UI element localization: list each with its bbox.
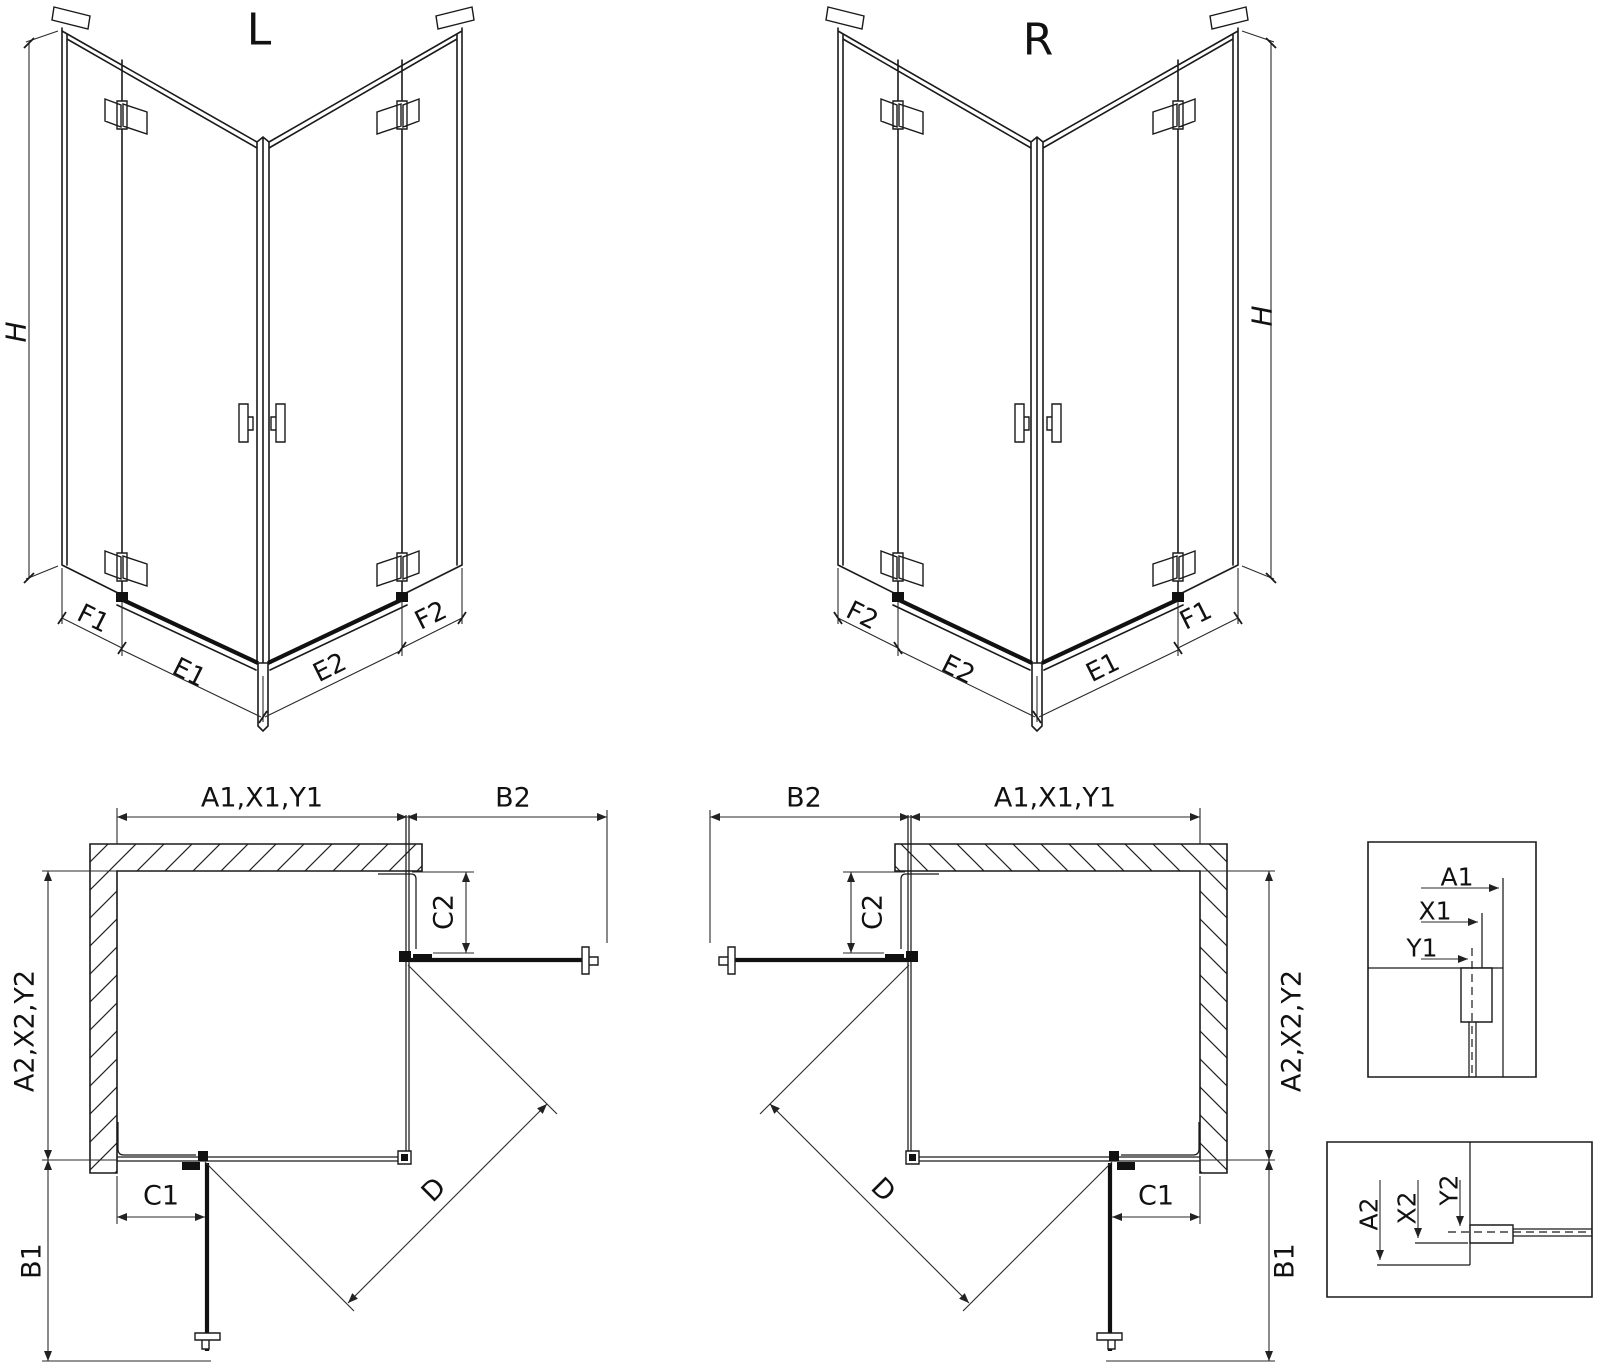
plan-extension-lines [42,808,607,1361]
detail-a1-profile [1461,968,1492,1022]
iso-right-f2-label: F2 [841,596,883,637]
plan-right-a2-label: A2,X2,Y2 [1277,970,1308,1092]
plan-right-d-label: D [865,1172,902,1209]
iso-pivot-blocks [116,592,408,602]
plan-walls-hatched [90,844,422,1173]
labels: L H F1 E1 E2 F2 R H F2 E2 E1 F1 A1,X1,Y1… [0,5,1474,1279]
plan-left-a2-label: A2,X2,Y2 [10,970,41,1092]
iso-door-handles [239,404,285,442]
iso-right-h-label: H [1246,305,1279,326]
plan-left-c2-label: C2 [429,894,460,930]
iso-left-e2-label: E2 [309,647,352,689]
plan-door-end-profiles [195,947,598,1349]
iso-left-title: L [247,5,272,56]
plan-right-b2-label: B2 [786,783,822,814]
detail-a2-label: A2 [1355,1197,1384,1230]
iso-left-e1-label: E1 [168,652,211,694]
plan-left-a1-label: A1,X1,Y1 [201,783,323,814]
plan-dim-d [348,1104,547,1303]
iso-threshold-bar [123,600,401,663]
iso-left-h-label: H [0,321,33,342]
detail-y2-label: Y2 [1435,1174,1464,1206]
detail-a2-profile [1470,1225,1513,1243]
plan-hinge-blocks [182,951,432,1170]
iso-left-f1-label: F1 [72,599,114,640]
iso-right-e2-label: E2 [937,649,980,691]
iso-right-title: R [1023,15,1054,66]
plan-left-d-label: D [416,1172,453,1209]
plan-right-b1-label: B1 [1270,1243,1301,1279]
plan-left-b1-label: B1 [17,1243,48,1279]
plan-left-b2-label: B2 [495,783,531,814]
detail-y1-label: Y1 [1405,934,1437,963]
plan-right-c1-label: C1 [1138,1181,1174,1212]
detail-a1-label: A1 [1440,863,1473,892]
iso-right-e1-label: E1 [1082,647,1125,689]
iso-left-f2-label: F2 [410,596,452,637]
technical-drawing-page: L H F1 E1 E2 F2 R H F2 E2 E1 F1 A1,X1,Y1… [0,0,1600,1366]
plan-right-c2-label: C2 [858,894,889,930]
plan-view-geometry-mirrored [710,808,1275,1361]
plan-left-c1-label: C1 [143,1181,179,1212]
detail-x1-label: X1 [1418,897,1451,926]
plan-right-a1-label: A1,X1,Y1 [994,783,1116,814]
detail-x2-label: X2 [1393,1191,1422,1224]
plan-view-geometry [42,808,607,1361]
shower-enclosure-diagram: L H F1 E1 E2 F2 R H F2 E2 E1 F1 A1,X1,Y1… [0,0,1600,1366]
iso-hinges [105,99,419,586]
